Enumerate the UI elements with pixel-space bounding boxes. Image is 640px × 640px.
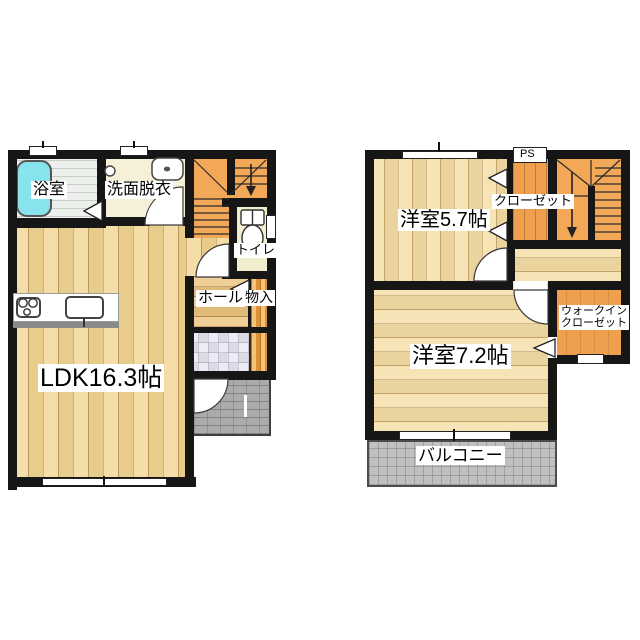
washroom-label: 洗面脱衣 xyxy=(105,181,173,199)
porch-step-mark xyxy=(244,395,247,417)
bath-label: 浴室 xyxy=(31,181,67,199)
wic-label-line1: ウォークイン xyxy=(561,305,627,317)
wic-label-line2: クローゼット xyxy=(561,317,627,329)
bedroom2-door-arc xyxy=(514,290,548,324)
wic-label: ウォークイン クローゼット xyxy=(559,305,629,330)
floorplan-linework xyxy=(0,0,640,640)
wic-door-marker xyxy=(534,339,555,357)
bedroom2-label: 洋室7.2帖 xyxy=(410,344,511,369)
floorplan-canvas: 浴室 洗面脱衣 トイレ ホール 物入 LDK16.3帖 洋室5.7帖 クローゼッ… xyxy=(0,0,640,640)
washer-tap xyxy=(105,166,115,176)
stairs-1f-down-arrow xyxy=(246,164,256,196)
ldk-label: LDK16.3帖 xyxy=(38,364,164,392)
ps-label: PS xyxy=(518,148,537,160)
closet-door-marker-bottom xyxy=(489,222,507,241)
closet-label: クローゼット xyxy=(492,194,574,209)
entry-door-arc xyxy=(194,379,228,413)
storage-label: 物入 xyxy=(243,290,275,306)
hall-label: ホール xyxy=(196,290,245,307)
ldk-door-arc xyxy=(196,244,229,277)
closet-door-marker-top xyxy=(489,169,507,188)
toilet-label: トイレ xyxy=(234,243,277,258)
washbasin xyxy=(152,158,183,180)
bedroom1-door-arc xyxy=(474,248,507,281)
bedroom1-label: 洋室5.7帖 xyxy=(398,209,490,231)
bath-door-marker xyxy=(84,201,102,221)
stove-burners xyxy=(19,299,37,315)
balcony-label: バルコニー xyxy=(416,446,505,465)
bedroom2-door-opening xyxy=(514,281,547,290)
